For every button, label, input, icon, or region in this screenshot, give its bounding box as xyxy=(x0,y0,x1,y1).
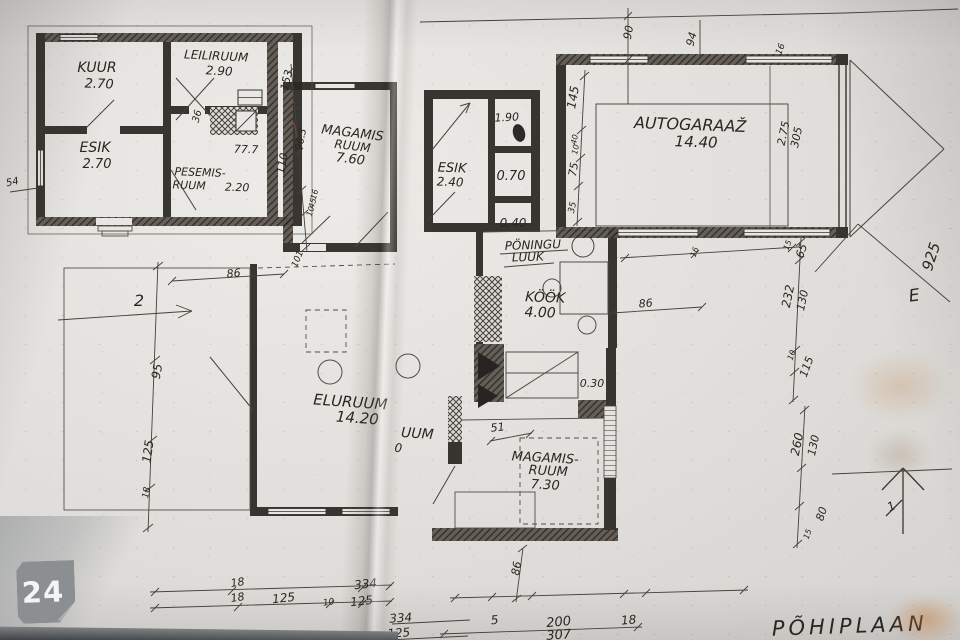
dim-18-bottom-c: 18 xyxy=(620,612,637,627)
dim-334-a: 334 xyxy=(353,576,377,592)
room-label-eluruum-area: 14.20 xyxy=(335,408,379,429)
eluruum-dashed-furniture xyxy=(258,264,395,352)
sheet-title: PÕHIPLAAN xyxy=(771,609,928,640)
room-label-kook-area: 4.00 xyxy=(524,304,556,321)
garage-walls xyxy=(556,54,944,238)
window-strip xyxy=(604,406,616,478)
dim-86-left: 86 xyxy=(226,266,241,280)
ink-blot xyxy=(511,123,527,143)
dim-54: 54 xyxy=(5,176,20,189)
dim-10-bottom: 10 xyxy=(322,597,335,609)
dim-145: 145 xyxy=(564,85,582,110)
room-label-kuur-area: 2.70 xyxy=(84,77,113,93)
room-label-fragment-name: UUM xyxy=(400,425,434,443)
room-label-magamisruum2-area: 7.30 xyxy=(530,477,560,493)
dim-115: 115 xyxy=(797,355,816,379)
dim-75: 75 xyxy=(566,161,581,177)
dim-125-bottom-a: 125 xyxy=(271,590,295,606)
dim-5-bottom: 5 xyxy=(490,613,499,628)
dim-86-right: 86 xyxy=(638,296,653,310)
dim-16-mid: 16 xyxy=(689,246,701,259)
room-label-esik-area: 2.40 xyxy=(437,175,465,190)
dim-307-bottom: 307 xyxy=(546,627,573,640)
room-label-leiliruum-name: LEILIRUUM xyxy=(184,47,250,64)
area-annotation-070: 0.70 xyxy=(497,169,526,184)
compass-letter-e: E xyxy=(908,285,922,306)
area-annotation-777: 77.7 xyxy=(234,143,259,157)
dim-18-left: 18 xyxy=(141,486,153,499)
area-annotation-190: 1.90 xyxy=(494,110,519,124)
dim-130-b: 130 xyxy=(805,434,822,457)
dim-125-bottom-b: 125 xyxy=(349,593,373,609)
room-label-esik-sauna-name: ESIK xyxy=(79,140,112,156)
dim-90-top: 90 xyxy=(621,24,636,40)
dim-15-a: 15 xyxy=(782,239,794,252)
dim-36: 36 xyxy=(191,109,205,124)
room-label-magamisruum1-area: 7.60 xyxy=(335,150,366,168)
attic-hatch-label-line2: LUUK xyxy=(512,249,546,264)
area-annotation-040: 0.40 xyxy=(500,216,527,230)
dim-86-bottom: 86 xyxy=(509,560,524,576)
dim-51: 51 xyxy=(490,420,505,434)
garage-gable xyxy=(850,60,944,237)
room-label-autogaraaz-area: 14.40 xyxy=(674,132,718,151)
dim-80: 80 xyxy=(813,505,830,522)
floorplan-drawing: KUUR 2.70 LEILIRUUM 2.90 ESIK 2.70 PESEM… xyxy=(0,0,960,640)
dim-94-top: 94 xyxy=(684,31,700,48)
area-annotation-030: 0.30 xyxy=(580,377,605,390)
dim-95: 95 xyxy=(149,363,165,380)
outbuilding-sauna-walls xyxy=(36,33,302,236)
dim-125-bottom-c: 125 xyxy=(387,625,411,640)
main-house-right-walls xyxy=(424,90,618,541)
room-label-pesemisruum-line2: RUUM xyxy=(172,178,206,192)
dim-260: 260 xyxy=(788,431,807,457)
dim-15-b: 15 xyxy=(802,528,814,541)
room-label-kuur-name: KUUR xyxy=(77,60,116,76)
dim-334-b: 334 xyxy=(389,610,413,626)
garage-door-lines xyxy=(839,65,846,227)
chimney-block xyxy=(474,276,502,342)
watermark-badge-number: 24 xyxy=(21,577,64,607)
room-label-leiliruum-area: 2.90 xyxy=(206,63,234,78)
direction-label-2: 2 xyxy=(134,291,144,310)
scanned-floorplan-photo: KUUR 2.70 LEILIRUUM 2.90 ESIK 2.70 PESEM… xyxy=(0,0,960,640)
main-house-left-walls xyxy=(28,26,420,516)
room-label-esik-sauna-area: 2.70 xyxy=(83,157,112,172)
dim-10-c: 10 xyxy=(570,144,581,156)
dim-18-bottom-b: 18 xyxy=(230,590,246,605)
dim-130-a: 130 xyxy=(794,289,811,312)
room-label-pesemisruum-area: 2.20 xyxy=(225,181,250,195)
room-label-fragment-area: 0 xyxy=(394,441,403,456)
room-label-pesemisruum-line1: PESEMIS- xyxy=(174,165,226,180)
dim-125-left: 125 xyxy=(140,439,157,464)
dim-18-bottom-a: 18 xyxy=(230,575,246,590)
dim-101: 101 xyxy=(290,249,306,269)
dim-925: 925 xyxy=(918,240,944,273)
dim-40: 40 xyxy=(569,134,580,146)
